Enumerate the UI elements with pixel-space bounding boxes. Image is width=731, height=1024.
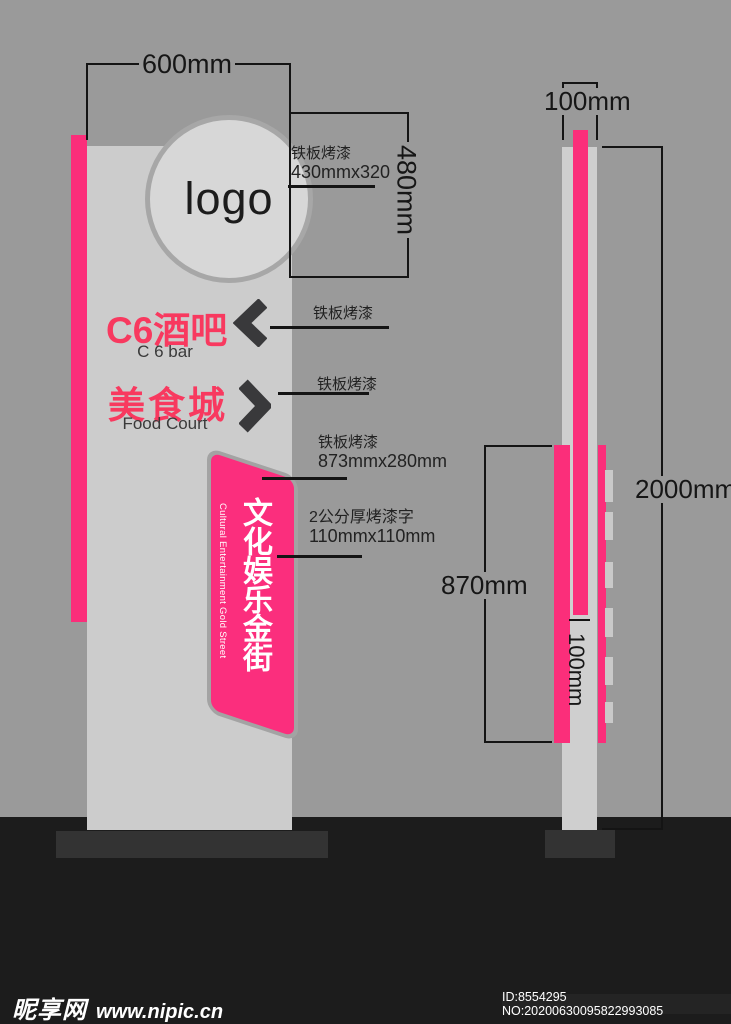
dimension-line (569, 619, 590, 621)
entry2-title-en: Food Court (100, 414, 230, 434)
mounting-tab (605, 512, 613, 540)
mounting-tab (605, 562, 613, 588)
mounting-tab (605, 657, 613, 685)
watermark: 昵享网 www.nipic.cn (12, 990, 223, 1024)
dimension-line (562, 82, 598, 84)
dimension-line (86, 63, 88, 140)
site-url: www.nipic.cn (96, 1001, 223, 1024)
site-logo: 昵享网 (12, 990, 87, 1024)
dim-depth-100: 100mm (541, 88, 634, 115)
mounting-tab (605, 702, 613, 723)
note-banner-letters: 2公分厚烤漆字 110mmx110mm (309, 509, 435, 546)
leader-line (270, 326, 389, 329)
note-entry2-material: 铁板烤漆 (317, 377, 377, 394)
dimension-line (289, 276, 409, 278)
leader-line (277, 555, 362, 558)
dimension-line (289, 112, 409, 114)
mounting-tab (605, 470, 613, 502)
logo-text: logo (184, 173, 273, 225)
arrow-right-icon (239, 379, 271, 433)
arrow-left-icon (233, 299, 267, 347)
logo-circle: logo (145, 115, 313, 283)
entry1-title-en: C 6 bar (100, 342, 230, 362)
front-base-pedestal (56, 831, 328, 858)
leader-line (288, 185, 375, 188)
note-size-text: 110mmx110mm (309, 527, 435, 547)
image-id-badge: ID:8554295 NO:20200630095822993085 (502, 994, 731, 1014)
note-size-text: 430mmx320 (291, 163, 390, 183)
dim-width-600: 600mm (139, 50, 235, 78)
dimension-line (602, 146, 663, 148)
banner-text-en-vertical: Cultural Entertainment Gold Street (217, 503, 228, 658)
dim-height-480: 480mm (392, 142, 420, 238)
dimension-line (484, 445, 552, 447)
note-banner-material: 铁板烤漆 873mmx280mm (318, 435, 447, 471)
banner-text-zh-vertical: 文化娱乐金街 (238, 497, 271, 671)
dim-stripe-100: 100mm (565, 630, 588, 709)
mounting-tab (605, 608, 613, 637)
side-base-pedestal (545, 830, 615, 858)
note-logo-material: 铁板烤漆 430mmx320 (291, 146, 390, 182)
note-material-text: 铁板烤漆 (318, 435, 447, 452)
side-center-pink-stripe (573, 130, 588, 615)
note-entry1-material: 铁板烤漆 (313, 306, 373, 323)
leader-line (262, 477, 347, 480)
dimension-line (602, 828, 663, 830)
note-size-text: 873mmx280mm (318, 452, 447, 472)
note-material-text: 铁板烤漆 (291, 146, 390, 163)
dim-panel-height-870: 870mm (438, 572, 531, 599)
dimension-line (484, 741, 552, 743)
front-left-pink-stripe (71, 135, 87, 622)
design-proof-canvas: logo C6酒吧 C 6 bar 美食城 Food Court Cultura… (0, 0, 731, 1024)
dim-total-height-2000: 2000mm (632, 476, 731, 503)
note-material-text: 2公分厚烤漆字 (309, 509, 435, 527)
